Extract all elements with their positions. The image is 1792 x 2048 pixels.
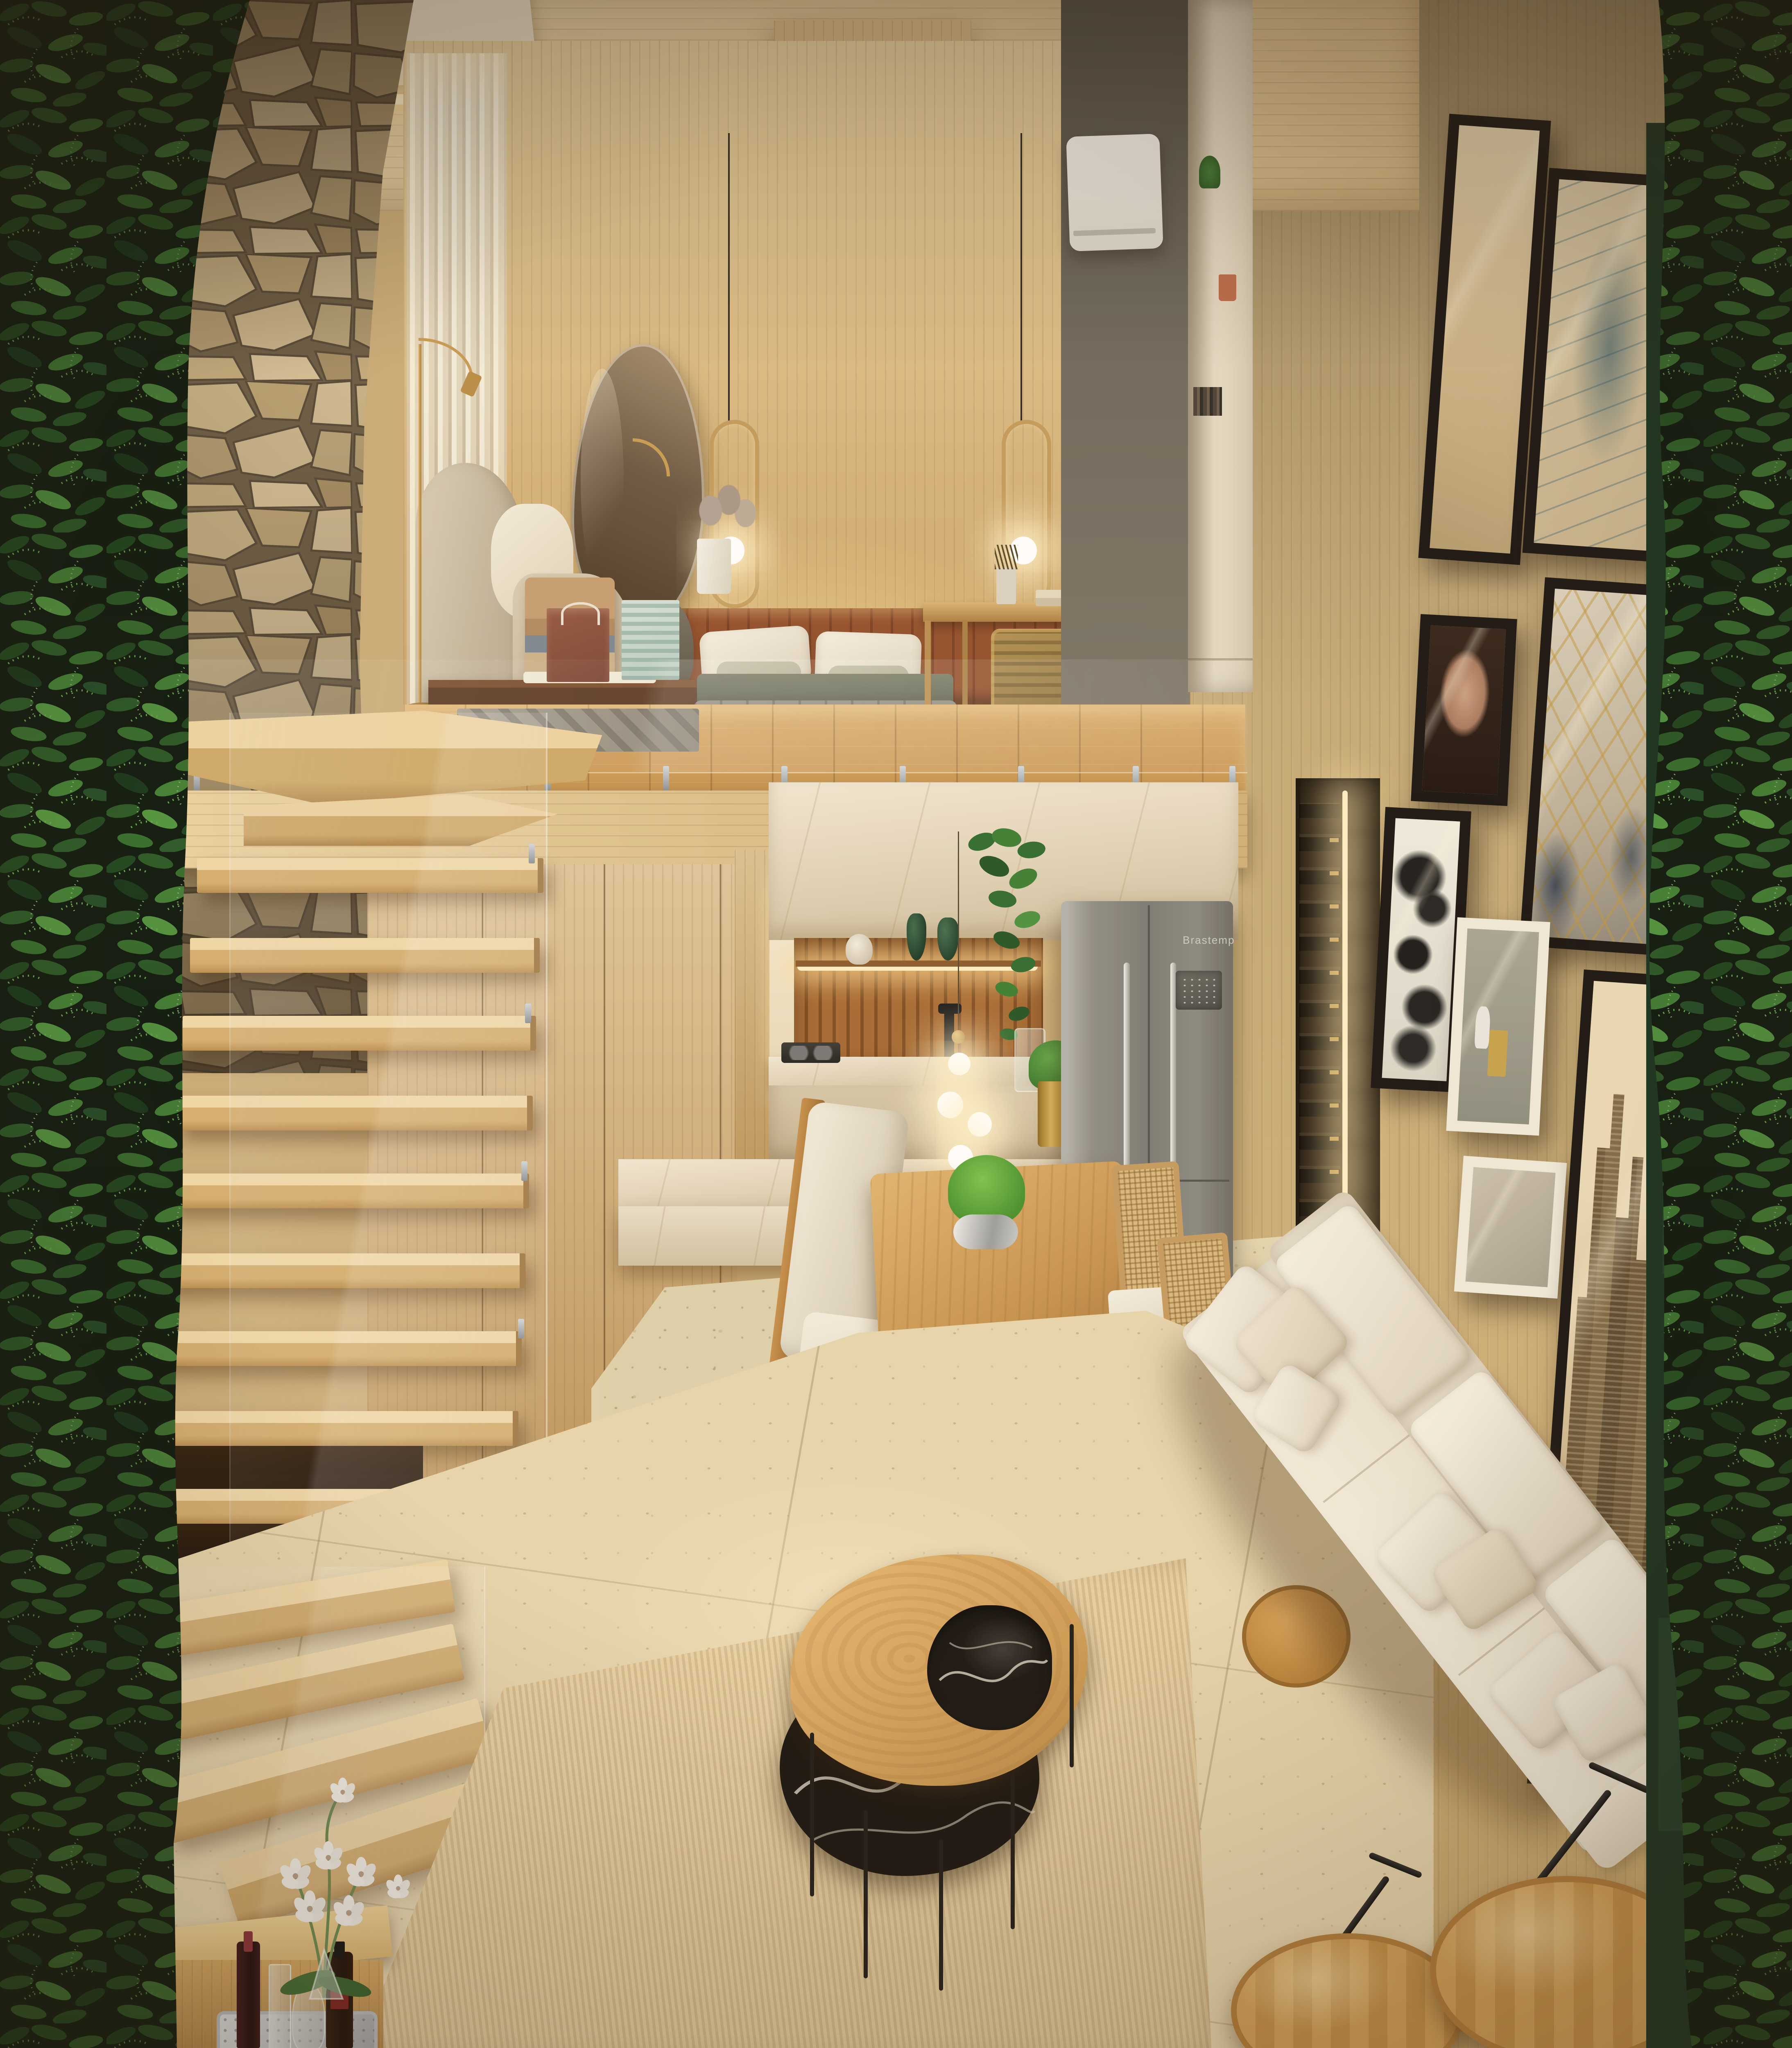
vertical-gardens [0, 0, 1792, 2048]
loft-interior-scene: Brastemp [0, 0, 1792, 2048]
